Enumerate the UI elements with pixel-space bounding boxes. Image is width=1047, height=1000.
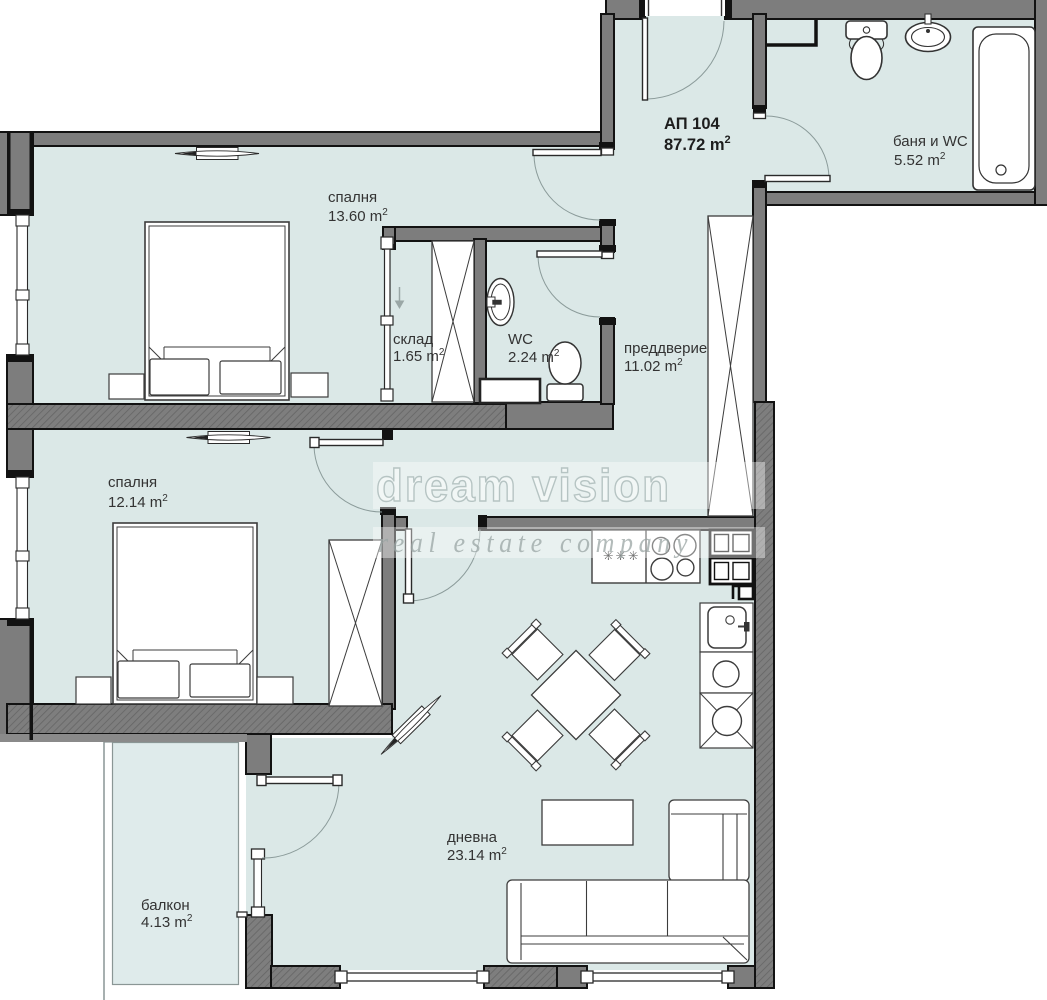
svg-text:13.60 m2: 13.60 m2 <box>328 207 388 225</box>
svg-text:спалня: спалня <box>108 474 157 491</box>
svg-text:5.52 m2: 5.52 m2 <box>894 151 946 169</box>
svg-text:12.14 m2: 12.14 m2 <box>108 493 168 511</box>
svg-text:2.24 m2: 2.24 m2 <box>508 348 560 366</box>
svg-text:АП 104: АП 104 <box>664 115 720 133</box>
svg-text:real estate company: real estate company <box>378 528 693 559</box>
svg-text:87.72 m2: 87.72 m2 <box>664 134 731 154</box>
svg-text:dream vision: dream vision <box>376 460 671 511</box>
svg-text:балкон: балкон <box>141 897 190 914</box>
svg-text:1.65 m2: 1.65 m2 <box>393 347 445 365</box>
svg-text:4.13 m2: 4.13 m2 <box>141 913 193 931</box>
svg-text:спалня: спалня <box>328 189 377 206</box>
svg-text:преддверие: преддверие <box>624 340 707 357</box>
svg-text:баня и WC: баня и WC <box>893 133 968 150</box>
svg-text:дневна: дневна <box>447 829 498 846</box>
svg-text:склад: склад <box>393 331 433 348</box>
svg-text:WC: WC <box>508 331 533 348</box>
svg-text:11.02 m2: 11.02 m2 <box>624 357 683 375</box>
svg-text:23.14 m2: 23.14 m2 <box>447 846 507 864</box>
